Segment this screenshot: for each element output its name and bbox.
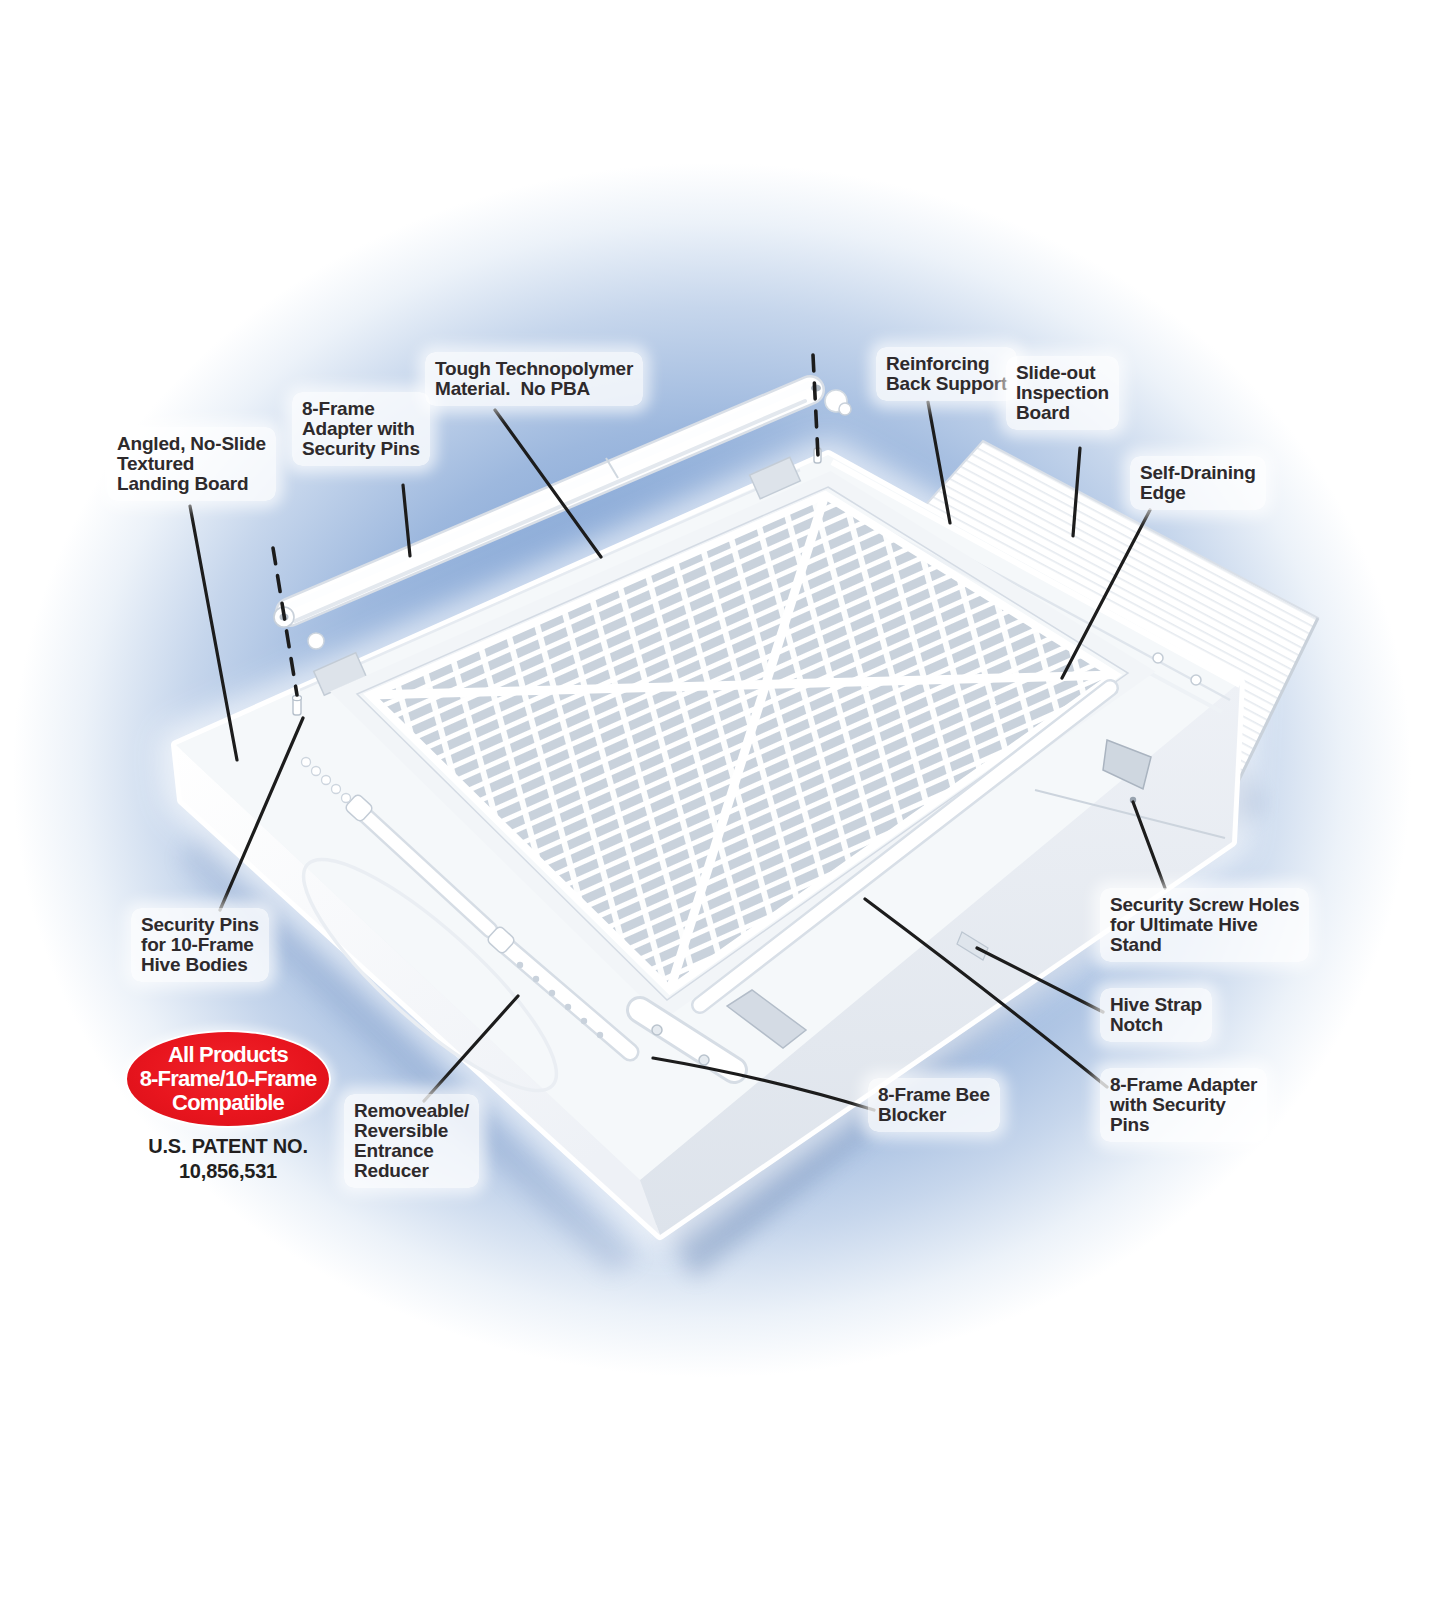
callout-security-screw-holes: Security Screw Holes for Ultimate Hive S… — [1100, 888, 1309, 962]
callout-back-support: Reinforcing Back Support — [876, 347, 1017, 401]
callout-hive-strap-notch: Hive Strap Notch — [1100, 988, 1212, 1042]
patent-number: U.S. PATENT NO. 10,856,531 — [122, 1134, 334, 1184]
callout-security-pins-left: Security Pins for 10-Frame Hive Bodies — [131, 908, 269, 982]
callout-landing-board: Angled, No-Slide Textured Landing Board — [107, 427, 276, 501]
patent-line2: 10,856,531 — [122, 1159, 334, 1184]
product-illustration — [0, 0, 1445, 1613]
callout-adapter-bottom-right: 8-Frame Adapter with Security Pins — [1100, 1068, 1267, 1142]
assembly-dashed-line-right — [813, 355, 818, 456]
callout-adapter-top: 8-Frame Adapter with Security Pins — [292, 392, 430, 466]
callout-bee-blocker: 8-Frame Bee Blocker — [868, 1078, 1000, 1132]
patent-line1: U.S. PATENT NO. — [122, 1134, 334, 1159]
callout-inspection-board: Slide-out Inspection Board — [1006, 356, 1119, 430]
compatibility-badge: All Products 8-Frame/10-Frame Compatible — [125, 1030, 331, 1128]
badge-line3: Compatible — [127, 1091, 329, 1115]
callout-self-draining-edge: Self-Draining Edge — [1130, 456, 1266, 510]
callout-entrance-reducer: Removeable/ Reversible Entrance Reducer — [344, 1094, 479, 1188]
badge-line1: All Products — [127, 1043, 329, 1067]
badge-line2: 8-Frame/10-Frame — [127, 1067, 329, 1091]
leader-adapter-top — [403, 485, 410, 556]
diagram-canvas: Angled, No-Slide Textured Landing Board … — [0, 0, 1445, 1613]
callout-technopolymer: Tough Technopolymer Material. No PBA — [425, 352, 643, 406]
